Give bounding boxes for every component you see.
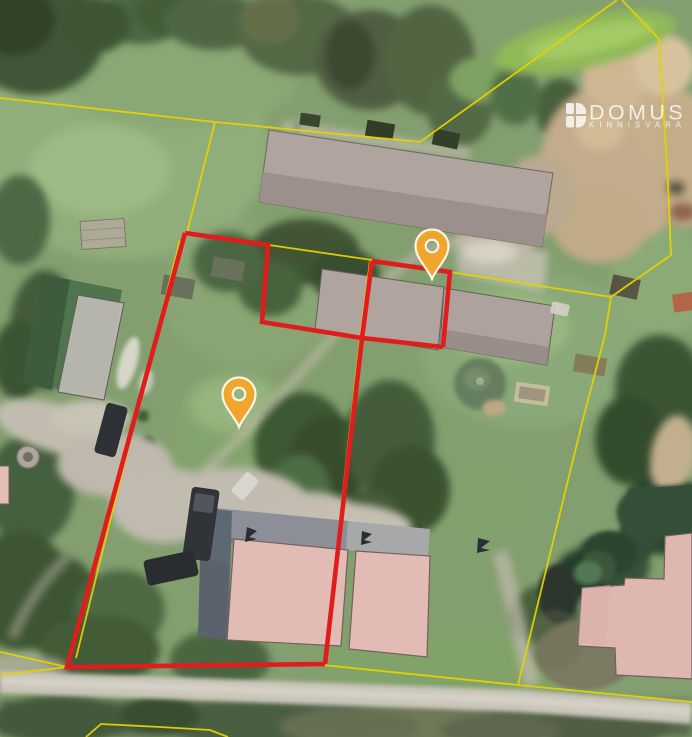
svg-text:KINNISVARA: KINNISVARA [589,121,686,130]
